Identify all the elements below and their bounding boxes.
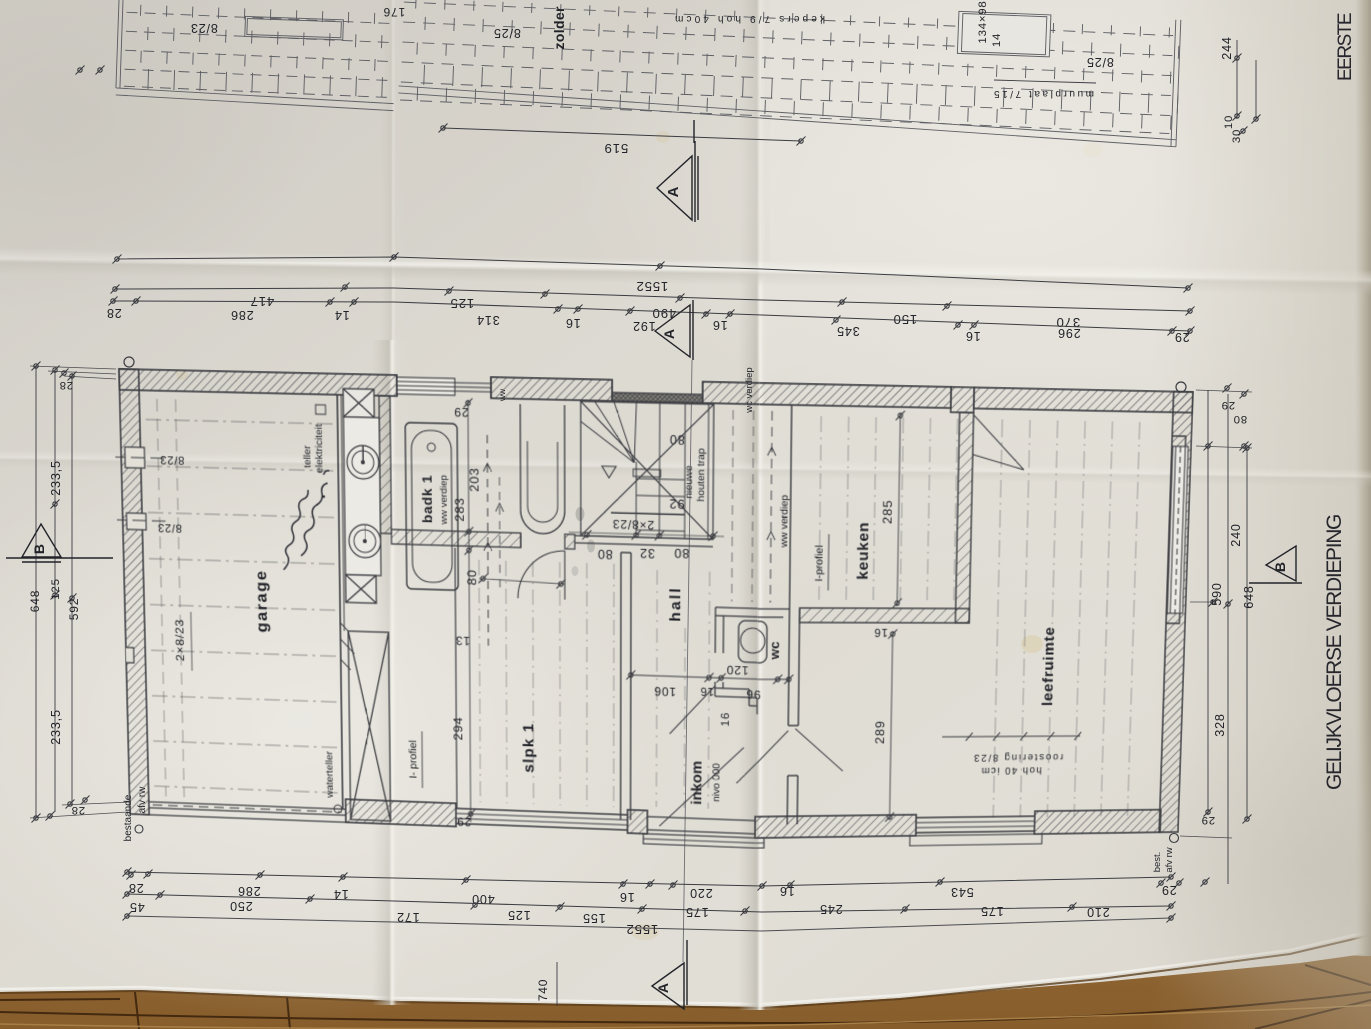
svg-text:2×8/23: 2×8/23 [612,517,654,533]
svg-text:teller: teller [302,445,313,468]
svg-text:286: 286 [237,884,260,898]
svg-text:14: 14 [991,33,1003,47]
svg-text:345: 345 [836,324,859,338]
svg-text:175: 175 [685,905,708,919]
svg-text:150: 150 [893,312,917,327]
svg-text:16: 16 [700,685,714,699]
svg-text:16: 16 [779,884,795,898]
svg-text:740: 740 [536,979,550,1001]
svg-text:ww verdiep: ww verdiep [779,495,790,549]
svg-text:314: 314 [476,313,499,327]
svg-text:houten trap: houten trap [696,448,707,502]
svg-text:29: 29 [1201,814,1215,826]
svg-text:155: 155 [582,911,605,925]
svg-text:80: 80 [1233,413,1247,425]
svg-text:14: 14 [334,308,350,322]
svg-text:8/25: 8/25 [1086,55,1114,69]
svg-text:203: 203 [467,467,482,492]
svg-text:hoh 40 icm: hoh 40 icm [982,765,1042,776]
svg-text:28: 28 [59,379,73,391]
svg-text:285: 285 [881,500,895,525]
svg-text:80: 80 [669,432,685,448]
svg-text:80: 80 [674,546,690,562]
svg-text:294: 294 [451,716,466,740]
svg-text:16: 16 [873,626,887,639]
svg-text:8/23: 8/23 [159,453,184,467]
svg-text:32: 32 [639,546,655,562]
svg-text:zolder: zolder [551,6,567,50]
svg-text:afv rw: afv rw [1164,847,1175,872]
svg-text:92: 92 [669,496,685,512]
svg-text:125: 125 [50,578,62,599]
svg-text:leefruimte: leefruimte [1039,627,1058,706]
svg-text:A: A [661,329,677,339]
svg-text:289: 289 [874,720,888,744]
svg-text:175: 175 [980,904,1003,918]
svg-text:nivo 000: nivo 000 [711,763,722,802]
svg-text:519: 519 [604,141,628,156]
svg-text:250: 250 [229,899,252,913]
svg-text:28: 28 [106,306,122,320]
svg-text:slpk 1: slpk 1 [521,723,538,773]
svg-text:16: 16 [965,329,981,343]
svg-text:592: 592 [67,598,81,620]
svg-text:244: 244 [1220,36,1234,59]
svg-text:nieuwe: nieuwe [684,465,695,499]
svg-text:16: 16 [719,712,732,727]
svg-text:best.: best. [1152,852,1163,873]
svg-text:125: 125 [507,908,530,922]
svg-text:233,5: 233,5 [49,460,63,496]
svg-text:176: 176 [383,5,405,19]
svg-text:30: 30 [1231,129,1243,143]
svg-text:29: 29 [1221,399,1235,411]
svg-text:elektriciteit: elektriciteit [314,424,325,474]
svg-text:210: 210 [1086,905,1109,919]
svg-text:muurplaat 7/15: muurplaat 7/15 [994,88,1094,99]
svg-text:28: 28 [71,804,85,816]
svg-text:garage: garage [253,571,271,633]
svg-text:648: 648 [1242,585,1256,608]
svg-text:GELIJKVLOERSE VERDIEPING: GELIJKVLOERSE VERDIEPING [1323,512,1346,790]
svg-text:roostering 8/23: roostering 8/23 [974,751,1063,762]
svg-text:ww verdiep: ww verdiep [439,475,450,526]
svg-text:245: 245 [819,902,842,916]
svg-text:283: 283 [452,497,467,522]
svg-text:192: 192 [632,319,655,333]
svg-text:EERSTE: EERSTE [1335,11,1356,81]
svg-text:296: 296 [1057,326,1080,340]
svg-text:134×98: 134×98 [977,0,989,43]
svg-text:29: 29 [1161,883,1177,897]
svg-text:80: 80 [597,547,613,563]
svg-text:wc: wc [767,641,782,660]
svg-text:inkom: inkom [689,761,705,805]
svg-text:keuken: keuken [854,522,872,579]
svg-text:1552: 1552 [636,279,669,294]
svg-text:16: 16 [619,890,635,904]
svg-text:A: A [665,186,682,197]
svg-text:I- profiel: I- profiel [407,740,419,779]
svg-text:waterteller: waterteller [325,750,336,798]
svg-text:A: A [655,983,671,993]
svg-text:10: 10 [1223,115,1235,129]
svg-text:8/23: 8/23 [190,21,218,35]
svg-text:2×8/23: 2×8/23 [173,619,187,662]
svg-text:8/25: 8/25 [493,26,521,40]
svg-text:125: 125 [450,296,474,311]
svg-text:badk 1: badk 1 [420,475,435,524]
svg-text:233,5: 233,5 [49,709,63,745]
svg-text:543: 543 [950,885,973,899]
svg-text:29: 29 [454,405,469,420]
svg-text:16: 16 [565,316,581,330]
svg-text:120: 120 [726,663,749,678]
svg-text:I-profiel: I-profiel [813,545,826,582]
svg-text:B: B [31,544,47,554]
svg-text:106: 106 [654,684,677,699]
svg-text:28: 28 [128,881,144,895]
svg-text:80: 80 [464,569,479,586]
svg-text:328: 328 [1213,713,1227,736]
svg-text:13: 13 [455,633,470,648]
svg-text:14: 14 [333,887,349,901]
svg-text:240: 240 [1229,523,1243,546]
svg-text:hall: hall [667,588,684,622]
svg-text:648: 648 [28,590,42,612]
svg-text:1552: 1552 [626,922,659,937]
svg-text:286: 286 [230,308,253,322]
svg-text:B: B [1272,562,1288,572]
svg-text:29: 29 [1174,330,1190,344]
svg-text:220: 220 [689,886,712,900]
svg-text:16: 16 [712,318,728,332]
svg-text:29: 29 [456,814,471,828]
